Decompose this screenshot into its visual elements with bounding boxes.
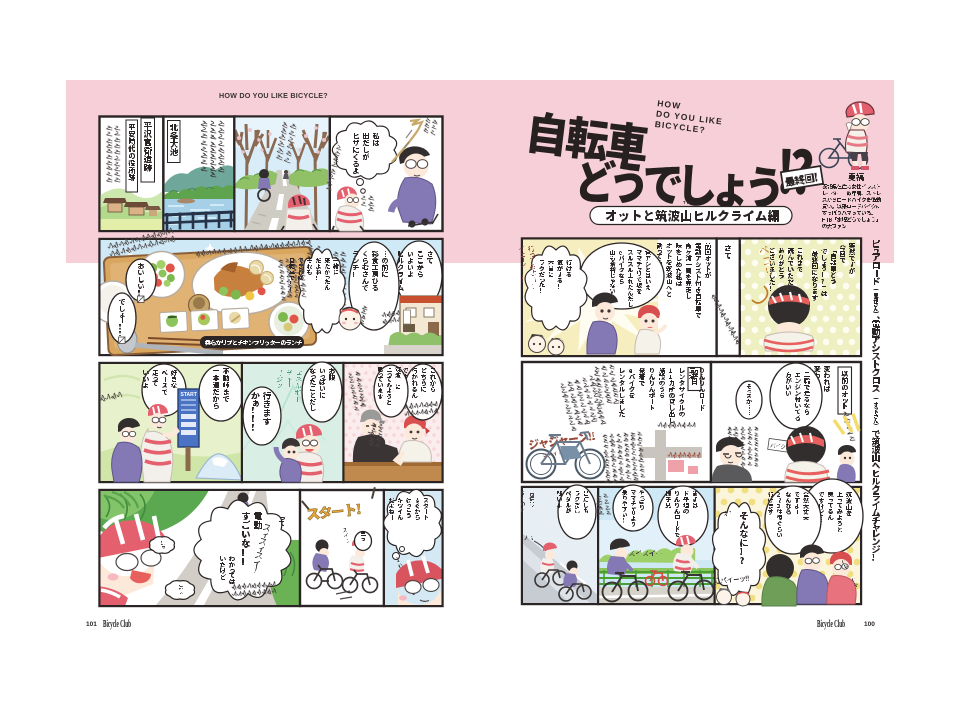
svg-text:Bicycle Club: Bicycle Club <box>817 619 845 630</box>
svg-text:101: 101 <box>86 621 97 628</box>
svg-text:Bicycle Club: Bicycle Club <box>103 619 131 630</box>
svg-text:START: START <box>181 392 197 398</box>
svg-text:100: 100 <box>864 621 875 628</box>
svg-text:HOW DO YOU LIKE BICYCLE?: HOW DO YOU LIKE BICYCLE? <box>219 91 328 100</box>
svg-text:THEME: THEME <box>683 200 704 205</box>
